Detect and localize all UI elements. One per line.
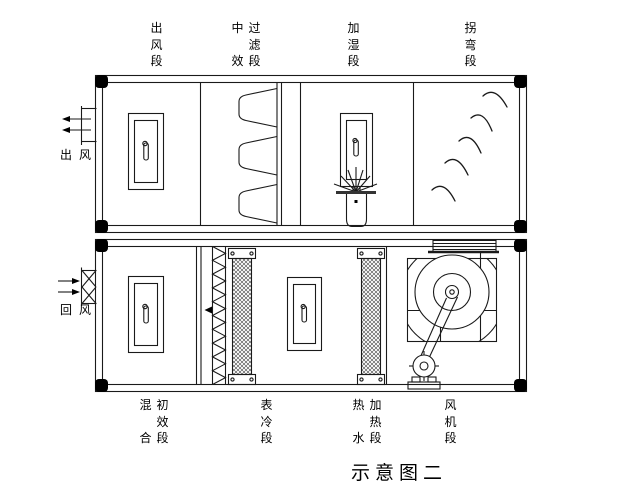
label-col: 热水 xyxy=(352,399,365,445)
label-col: 出风段 xyxy=(150,22,163,68)
label-return-air: 回风 xyxy=(60,301,98,318)
fan-discharge-connector xyxy=(428,240,499,253)
label-col: 加湿段 xyxy=(347,22,360,68)
label-cooling-coil-section: 表冷段 xyxy=(260,399,273,445)
return-air-arrows xyxy=(58,278,80,295)
label-turn-section: 拐弯段 xyxy=(464,22,477,68)
label-supply-air: 出风 xyxy=(60,146,98,163)
ahu-schematic: 出风段 中效 过滤段 加湿段 拐弯段 混合 初效段 表冷段 热水 加热段 风机段… xyxy=(0,0,635,491)
supply-air-outlet xyxy=(82,106,97,145)
top-unit-casing xyxy=(95,75,527,233)
label-col: 初效段 xyxy=(156,399,169,445)
label-hot-water-heating-section: 热水 加热段 xyxy=(352,399,382,445)
label-fan-section: 风机段 xyxy=(444,399,457,445)
door-mixing-section xyxy=(129,277,164,353)
label-col: 表冷段 xyxy=(260,399,273,445)
label-col: 过滤段 xyxy=(248,22,261,68)
diagram-caption: 示意图二 xyxy=(351,458,447,485)
label-medium-filter-section: 中效 过滤段 xyxy=(231,22,261,68)
label-col: 拐弯段 xyxy=(464,22,477,68)
label-mixing-prefilter-section: 混合 初效段 xyxy=(139,399,169,445)
centrifugal-fan xyxy=(400,245,504,389)
ahu-line-drawing xyxy=(0,0,635,491)
label-col: 加热段 xyxy=(369,399,382,445)
humidifier-assembly xyxy=(334,114,377,227)
prefilter-zigzag xyxy=(205,247,226,385)
turn-vanes-arcs xyxy=(432,92,507,201)
cooling-coil xyxy=(229,249,256,385)
label-air-outlet-section: 出风段 xyxy=(150,22,163,68)
fan-impeller xyxy=(415,255,489,329)
supply-air-arrows xyxy=(62,116,91,133)
label-humidifier-section: 加湿段 xyxy=(347,22,360,68)
fan-motor xyxy=(408,351,440,389)
label-col: 中效 xyxy=(231,22,244,68)
label-col: 风机段 xyxy=(444,399,457,445)
door-air-outlet xyxy=(129,114,164,190)
door-cooling-section xyxy=(288,278,322,351)
label-col: 混合 xyxy=(139,399,152,445)
bag-filter-pockets xyxy=(239,83,282,226)
heating-coil xyxy=(358,249,385,385)
